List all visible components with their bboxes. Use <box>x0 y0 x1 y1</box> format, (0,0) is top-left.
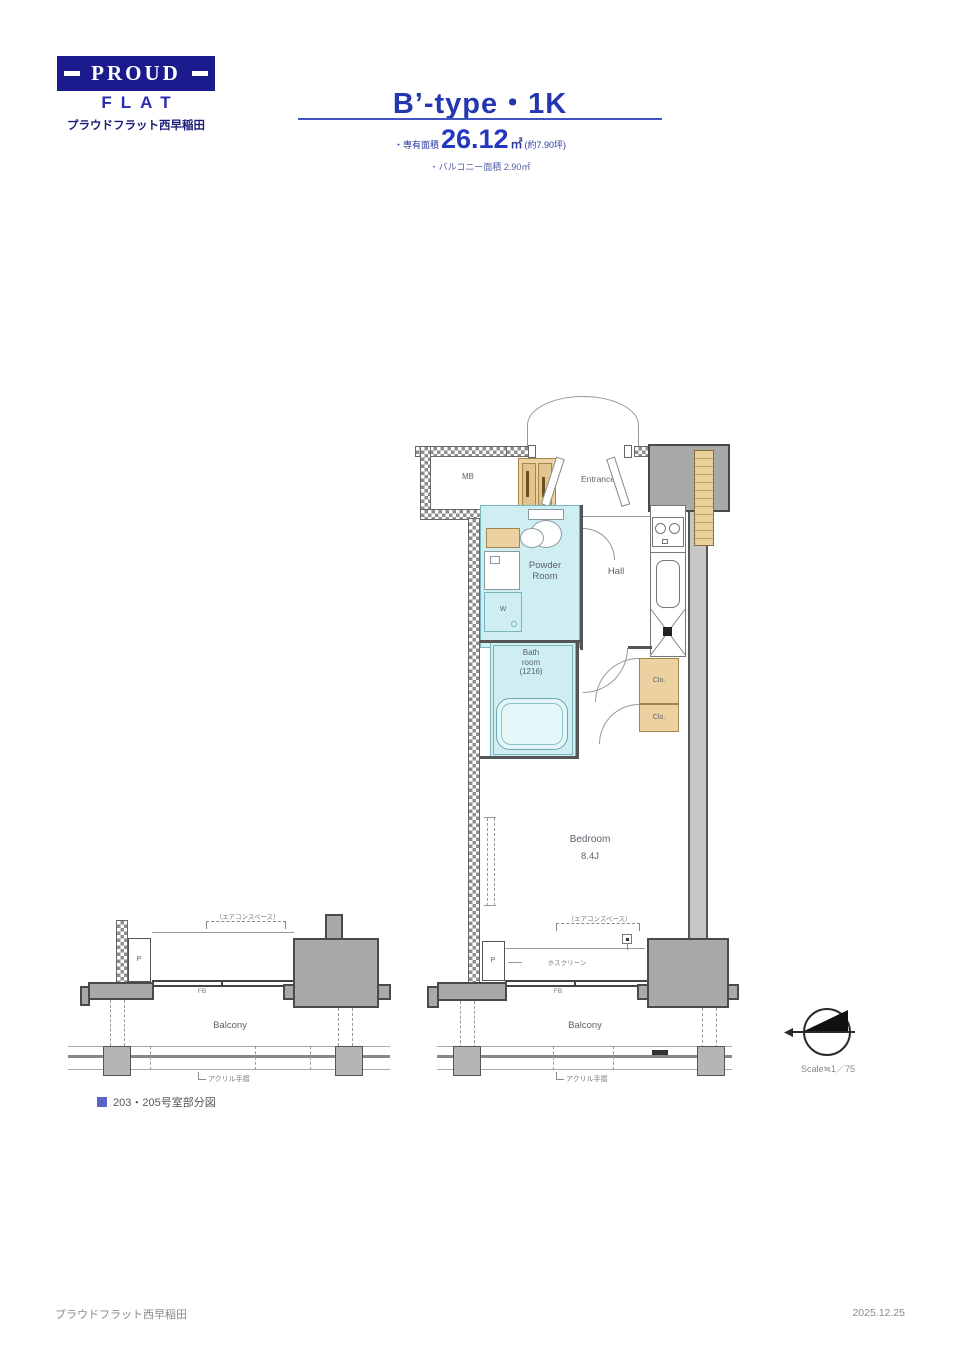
area-value: 26.12 <box>441 124 509 155</box>
partial-ac-tick <box>206 921 207 929</box>
railing-line <box>437 1046 732 1047</box>
partial-wall-step <box>80 986 90 1006</box>
partial-pillar-dash <box>124 1000 125 1046</box>
window-ledge-line <box>505 948 645 949</box>
bedroom-size-label: 8.4J <box>540 851 640 862</box>
partial-footing <box>103 1046 131 1076</box>
rail-note: アクリル手摺 <box>566 1074 636 1084</box>
partial-pillar-dash <box>352 1008 353 1046</box>
partial-rail-note: アクリル手摺 <box>208 1074 278 1084</box>
logo-flat-text: FLAT <box>57 93 215 113</box>
ac-bracket-tick <box>639 923 640 931</box>
mb-label: MB <box>428 472 508 482</box>
closet-door-arc <box>599 704 639 744</box>
footer-date: 2025.12.25 <box>800 1307 905 1319</box>
pillar-dash <box>716 1008 717 1048</box>
balcony-area-line: ・バルコニー面積 2.90㎡ <box>330 160 630 173</box>
kitchen-sink <box>656 560 680 608</box>
wall-side-dash <box>494 818 495 906</box>
shoe-cabinet-mark <box>526 471 529 497</box>
partial-window <box>152 980 294 987</box>
area-line: ・専有面積 26.12 ㎡ (約7.90坪) <box>330 124 630 155</box>
drain-mark <box>652 1050 668 1055</box>
burner-icon <box>655 523 666 534</box>
partial-pillar-dash <box>110 1000 111 1046</box>
door-frame-left <box>528 445 536 458</box>
dash-cap <box>484 817 496 818</box>
ac-sleeve-icon <box>622 934 632 944</box>
closet-upper: Clo. <box>639 658 679 704</box>
pillar-dash <box>702 1008 703 1048</box>
logo-property-name: プラウドフラット西早稲田 <box>45 117 227 133</box>
railing-post <box>613 1046 614 1070</box>
area-unit: ㎡ <box>511 135 523 152</box>
ac-bracket-tick <box>556 923 557 931</box>
area-tsubo: (約7.90坪) <box>525 138 567 151</box>
powder-door-arc <box>583 528 615 560</box>
partial-window-tick <box>221 980 223 987</box>
footing <box>697 1046 725 1076</box>
wall-bar-step <box>427 986 439 1008</box>
stove-knob <box>662 539 668 544</box>
balcony-label: Balcony <box>540 1020 630 1031</box>
ac-space-note: （エアコンスペース） <box>552 913 647 923</box>
wall-hatch-unit-left <box>468 518 480 985</box>
wall-bath-bottom <box>480 756 579 759</box>
wall-hatch-entrance-left <box>506 446 530 457</box>
partial-railing-post <box>255 1046 256 1070</box>
dash-cap <box>484 905 496 906</box>
closet-lower-label: Clo. <box>640 714 678 722</box>
bath-label-line1: Bath <box>496 648 566 658</box>
ac-bracket <box>556 923 640 931</box>
partial-balcony-label: Balcony <box>185 1020 275 1031</box>
caption-square-icon <box>97 1097 107 1107</box>
pillar-dash <box>460 1001 461 1048</box>
partial-ac-note: （エアコンスペース） <box>200 911 295 921</box>
footer-property-name: プラウドフラット西早稲田 <box>55 1306 187 1322</box>
fb-label: FB <box>538 988 578 995</box>
wash-basin <box>520 528 544 548</box>
floorplan-page: PROUD FLAT プラウドフラット西早稲田 B’-type・1K ・専有面積… <box>0 0 960 1360</box>
partial-pillar-box: P <box>128 938 151 982</box>
column-top-right <box>648 444 730 512</box>
railing-line <box>437 1055 732 1058</box>
entrance-door-arc <box>527 396 639 454</box>
w-label: W <box>485 606 521 614</box>
partial-pillar-dash <box>338 1008 339 1046</box>
wall-bath-right <box>576 642 579 758</box>
bath-label-line3: (1216) <box>496 667 566 677</box>
tall-cabinet <box>694 450 714 546</box>
shower-box: W <box>484 592 522 632</box>
washer-detail <box>490 556 500 564</box>
partial-railing-post <box>150 1046 151 1070</box>
north-arrowhead-icon <box>784 1028 793 1037</box>
partial-wall-hatch <box>116 920 128 986</box>
partial-wall-bar <box>88 982 154 1000</box>
logo-proud-text: PROUD <box>91 61 181 86</box>
partial-ac-bracket <box>206 921 286 929</box>
powder-room-label-line2: Room <box>500 571 590 582</box>
railing-post <box>553 1046 554 1070</box>
closet-upper-label: Clo. <box>640 677 678 685</box>
logo-dash-left-icon <box>64 71 80 76</box>
wall-powder-bath <box>480 640 580 643</box>
pipe-mark <box>663 627 672 636</box>
door-frame-right <box>624 445 632 458</box>
powder-room-label: Powder Room <box>500 560 590 583</box>
hos-leader <box>508 962 522 963</box>
partial-column <box>293 938 379 1008</box>
title-rule <box>298 118 662 120</box>
wall-hall-bedroom <box>628 646 652 649</box>
bedroom-label: Bedroom <box>540 834 640 846</box>
partial-railing-post <box>310 1046 311 1070</box>
toilet-tank <box>528 509 564 520</box>
bath-label-line2: room <box>496 658 566 668</box>
wall-side-dash <box>487 818 488 906</box>
brand-logo: PROUD <box>57 56 215 91</box>
entrance-label: Entrance <box>560 474 636 484</box>
p-label: P <box>483 957 503 965</box>
partial-notch <box>377 984 391 1000</box>
ac-sleeve-line <box>627 944 628 950</box>
partial-notch <box>283 984 295 1000</box>
stove <box>652 517 684 547</box>
burner-icon <box>669 523 680 534</box>
partial-caption: 203・205号室部分図 <box>113 1094 313 1110</box>
bathtub-inner <box>501 703 563 745</box>
area-label: ・専有面積 <box>394 138 439 151</box>
north-line-icon <box>789 1031 855 1033</box>
counter-line <box>650 552 686 553</box>
pillar-box: P <box>482 941 505 981</box>
partial-rail-note-leader <box>198 1072 206 1080</box>
bath-room-label: Bath room (1216) <box>496 648 566 677</box>
bathtub <box>496 698 568 750</box>
wall-strip-right <box>688 512 708 942</box>
vanity-counter <box>486 528 520 548</box>
partial-footing <box>335 1046 363 1076</box>
rail-note-leader <box>556 1072 564 1080</box>
hos-note: ホスクリーン <box>522 957 612 967</box>
partial-column-stub <box>325 914 343 940</box>
wall-bar-bottom-left <box>437 982 507 1001</box>
hall-label: Hall <box>586 566 646 577</box>
powder-room-label-line1: Powder <box>500 560 590 571</box>
partial-fb-label: FB <box>182 988 222 995</box>
column-notch <box>727 984 739 1000</box>
wall-powder-hall <box>580 505 583 650</box>
window-center-tick <box>574 980 576 987</box>
ac-sleeve-dot <box>626 938 629 941</box>
partial-ac-tick <box>285 921 286 929</box>
pillar-dash <box>474 1001 475 1048</box>
partial-p-label: P <box>129 956 149 964</box>
drain-icon <box>511 621 517 627</box>
page-title: B’-type・1K <box>300 80 660 122</box>
railing-line <box>437 1069 732 1070</box>
sliding-window <box>505 980 647 987</box>
column-bottom-right <box>647 938 729 1008</box>
scale-label: Scale≒1／75 <box>770 1062 886 1075</box>
logo-dash-right-icon <box>192 71 208 76</box>
closet-lower: Clo. <box>639 704 679 732</box>
footing <box>453 1046 481 1076</box>
partial-ledge-line <box>152 932 294 933</box>
